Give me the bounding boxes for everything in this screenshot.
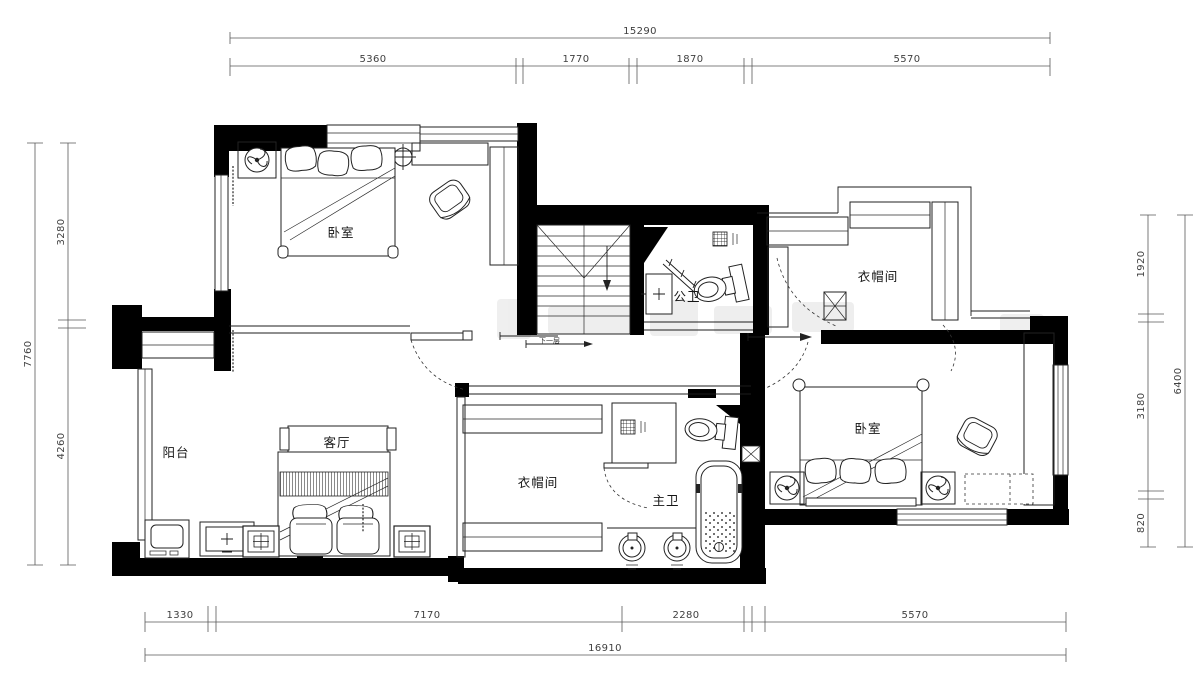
dim-left-seg-1: 3280 [56,218,67,245]
dim-left-total: 7760 [23,340,34,367]
dim-top-seg-3: 1870 [676,54,703,65]
dim-top-seg-2: 1770 [562,54,589,65]
floor-drain-icon [713,232,737,246]
dim-bottom-seg-3: 2280 [672,610,699,621]
hanger-rail-cloakroom-top-b [850,202,930,228]
washing-machine-icon [145,520,189,558]
hanger-rail-cloakroom-top-v [932,202,958,320]
dim-top-seg-1: 5360 [359,54,386,65]
cloakroom-bottom: 衣帽间 [518,475,559,490]
dimension-left: 7760 3280 4260 [23,143,86,565]
public-bathroom: 公卫 [390,144,749,314]
floor-drain-icon [621,420,645,434]
vanity-sink-icon [619,533,645,569]
bed-icon [278,145,398,258]
nightstand-icon [394,526,430,557]
hanger-rail-cloakroom-top-a [767,217,848,245]
vanity-sink-icon [664,533,690,569]
bed-icon [793,379,929,506]
room-label-balcony: 阳台 [162,445,189,460]
dim-top-seg-4: 5570 [893,54,920,65]
bathtub-icon [696,461,742,563]
hanger-rail-cloakroom-bottom-low [463,523,602,551]
room-label-public-bath: 公卫 [673,289,700,304]
sink-icon [641,274,672,314]
dim-right-seg-1: 1920 [1136,250,1147,277]
hanger-rail-left-closet [142,332,214,358]
dim-left-seg-2: 4260 [56,432,67,459]
armchair-icon [426,177,473,223]
room-label-cloakroom-bottom: 衣帽间 [518,475,559,490]
armchair-icon [954,414,1000,458]
window-top-thin [420,127,518,141]
stair-direction-note: 下一层 [539,337,560,345]
dim-bottom-seg-2: 7170 [413,610,440,621]
hanger-rail-bedroom-top [490,147,518,265]
dresser-icon [965,474,1033,504]
balcony: 阳台 [145,445,254,558]
dim-bottom-total: 16910 [588,643,622,654]
living-area: 客厅 [243,426,430,557]
room-label-living: 客厅 [323,435,350,450]
dimension-top: 15290 5360 1770 1870 5570 [230,26,1050,84]
column-marker [742,446,760,462]
cloakroom-top: 衣帽间 [858,269,899,284]
nightstand-icon [770,472,804,504]
hanger-rail-cloakroom-bottom-top [463,405,602,433]
dim-bottom-seg-1: 1330 [166,610,193,621]
window-balcony [138,369,152,540]
dim-right-seg-3: 820 [1136,513,1147,533]
window-left-bedroom [215,175,228,291]
room-label-bedroom-top: 卧室 [327,225,354,240]
room-label-cloakroom-top: 衣帽间 [858,269,899,284]
dimension-bottom: 1330 7170 2280 5570 16910 [145,606,1066,662]
window-bedroom-right-bottom [897,509,1007,525]
room-label-master-bath: 主卫 [652,493,679,508]
nightstand-icon [921,472,955,504]
toilet-icon [683,412,738,449]
bedroom-top: 卧室 [238,142,473,258]
floor-plan-drawing: 15290 5360 1770 1870 5570 7760 3280 4260… [0,0,1200,686]
dim-top-total: 15290 [623,26,657,37]
dim-right-seg-2: 3180 [1136,392,1147,419]
window-bedroom-right-side [1053,365,1068,475]
dim-bottom-seg-4: 5570 [901,610,928,621]
floor-plan-canvas: 15290 5360 1770 1870 5570 7760 3280 4260… [0,0,1200,686]
nightstand-icon [243,526,279,557]
bedroom-right: 卧室 [770,379,1033,506]
dimension-right: 1920 3180 820 6400 [1136,215,1193,547]
dim-right-total: 6400 [1173,367,1184,394]
room-label-bedroom-right: 卧室 [854,421,881,436]
master-bathroom: 主卫 [612,403,742,569]
wardrobe-bedroom-top [412,143,488,165]
